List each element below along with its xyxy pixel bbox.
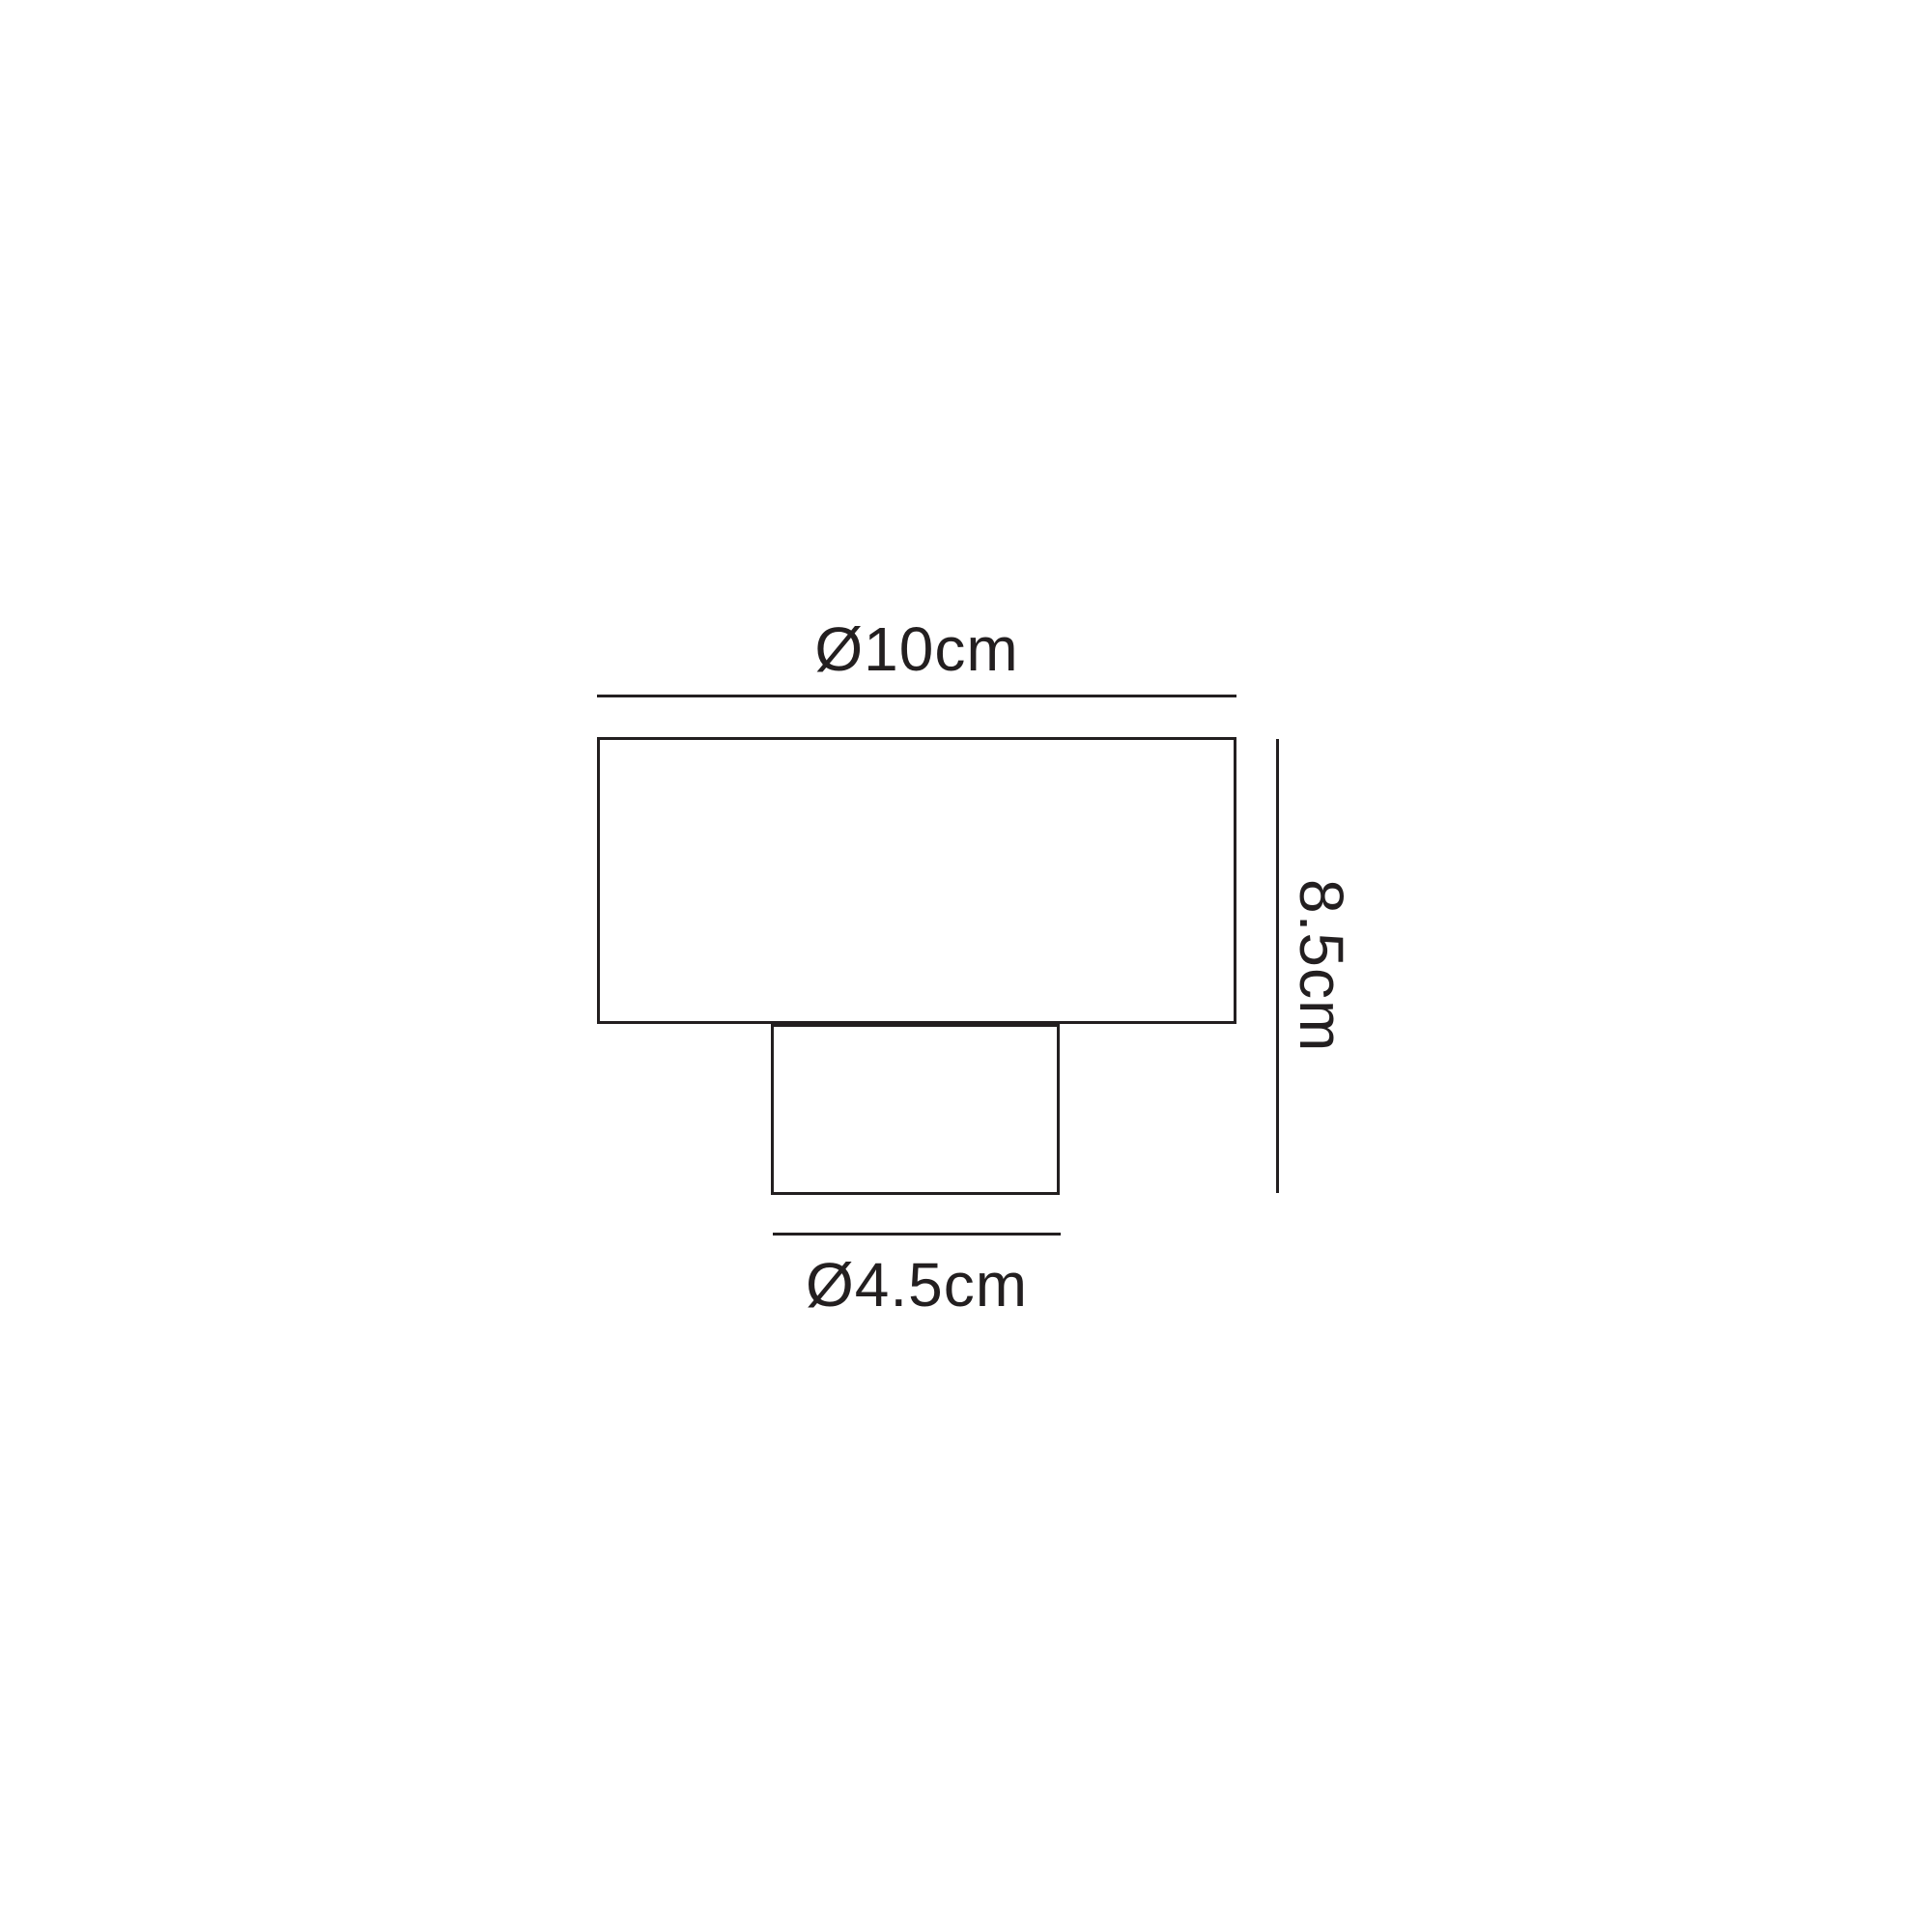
base-width-label: Ø4.5cm <box>597 1254 1236 1316</box>
height-label: 8.5cm <box>1291 739 1352 1193</box>
base-outline-rect <box>771 1024 1060 1195</box>
dimension-diagram: Ø10cm 8.5cm Ø4.5cm <box>0 0 1932 1932</box>
height-dimension-line <box>1276 739 1279 1193</box>
top-width-dimension-line <box>597 695 1236 697</box>
base-width-dimension-line <box>773 1233 1061 1236</box>
top-width-label: Ø10cm <box>597 618 1236 680</box>
shade-outline-rect <box>597 737 1236 1024</box>
